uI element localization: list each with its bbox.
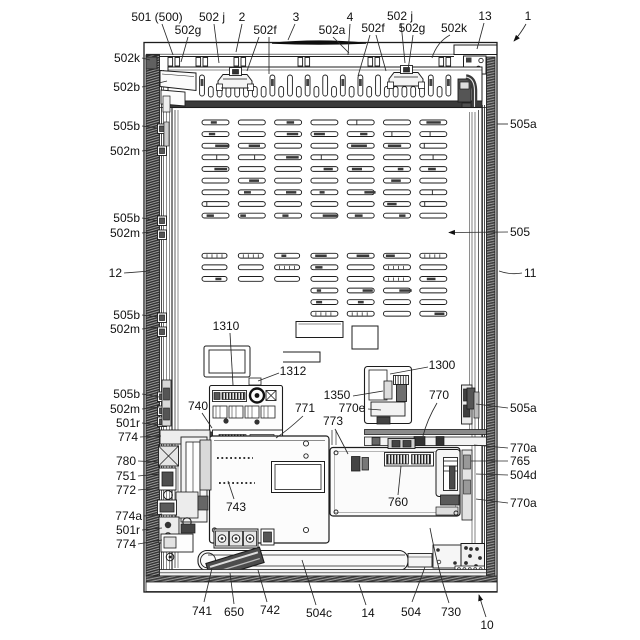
svg-text:505a: 505a bbox=[510, 117, 537, 131]
svg-text:505b: 505b bbox=[113, 211, 140, 225]
svg-text:14: 14 bbox=[361, 606, 375, 620]
svg-text:740: 740 bbox=[188, 399, 208, 413]
svg-text:502k: 502k bbox=[114, 51, 141, 65]
svg-text:1: 1 bbox=[525, 9, 532, 23]
svg-text:1312: 1312 bbox=[280, 364, 307, 378]
svg-text:771: 771 bbox=[295, 401, 315, 415]
svg-text:502b: 502b bbox=[113, 80, 140, 94]
svg-text:770e: 770e bbox=[339, 401, 366, 415]
svg-text:774a: 774a bbox=[115, 509, 142, 523]
svg-text:770a: 770a bbox=[510, 496, 537, 510]
svg-text:1310: 1310 bbox=[213, 319, 240, 333]
svg-text:743: 743 bbox=[226, 500, 246, 514]
svg-text:505b: 505b bbox=[113, 119, 140, 133]
svg-text:774: 774 bbox=[116, 537, 136, 551]
svg-text:501r: 501r bbox=[116, 523, 140, 537]
svg-text:2: 2 bbox=[239, 10, 246, 24]
svg-text:501 (500): 501 (500) bbox=[131, 10, 182, 24]
svg-text:3: 3 bbox=[293, 10, 300, 24]
svg-text:502g: 502g bbox=[399, 21, 426, 35]
svg-text:502f: 502f bbox=[361, 21, 385, 35]
svg-text:505a: 505a bbox=[510, 401, 537, 415]
svg-text:773: 773 bbox=[323, 414, 343, 428]
svg-text:502 j: 502 j bbox=[199, 10, 225, 24]
svg-text:730: 730 bbox=[441, 605, 461, 619]
svg-text:650: 650 bbox=[224, 605, 244, 619]
svg-text:504c: 504c bbox=[306, 606, 332, 620]
svg-text:780: 780 bbox=[116, 454, 136, 468]
svg-text:502f: 502f bbox=[253, 23, 277, 37]
svg-text:504d: 504d bbox=[510, 468, 537, 482]
svg-text:505: 505 bbox=[510, 225, 530, 239]
svg-text:751: 751 bbox=[116, 469, 136, 483]
svg-text:765: 765 bbox=[510, 454, 530, 468]
svg-text:770a: 770a bbox=[510, 441, 537, 455]
svg-text:742: 742 bbox=[260, 603, 280, 617]
svg-text:760: 760 bbox=[388, 495, 408, 509]
svg-text:12: 12 bbox=[109, 266, 123, 280]
svg-text:505b: 505b bbox=[113, 308, 140, 322]
svg-text:502m: 502m bbox=[110, 226, 140, 240]
svg-text:741: 741 bbox=[192, 604, 212, 618]
svg-text:502m: 502m bbox=[110, 322, 140, 336]
svg-text:502k: 502k bbox=[441, 21, 468, 35]
svg-text:772: 772 bbox=[116, 483, 136, 497]
svg-text:1350: 1350 bbox=[324, 388, 351, 402]
svg-text:502a: 502a bbox=[319, 23, 346, 37]
svg-text:502m: 502m bbox=[110, 144, 140, 158]
svg-text:13: 13 bbox=[478, 9, 492, 23]
svg-text:502g: 502g bbox=[175, 23, 202, 37]
svg-text:505b: 505b bbox=[113, 387, 140, 401]
svg-text:502m: 502m bbox=[110, 402, 140, 416]
svg-text:4: 4 bbox=[347, 10, 354, 24]
svg-text:501r: 501r bbox=[116, 416, 140, 430]
svg-text:770: 770 bbox=[429, 388, 449, 402]
svg-text:1300: 1300 bbox=[429, 358, 456, 372]
svg-text:11: 11 bbox=[524, 266, 537, 280]
svg-text:774: 774 bbox=[118, 430, 138, 444]
svg-text:10: 10 bbox=[480, 618, 494, 632]
svg-text:504: 504 bbox=[401, 605, 421, 619]
